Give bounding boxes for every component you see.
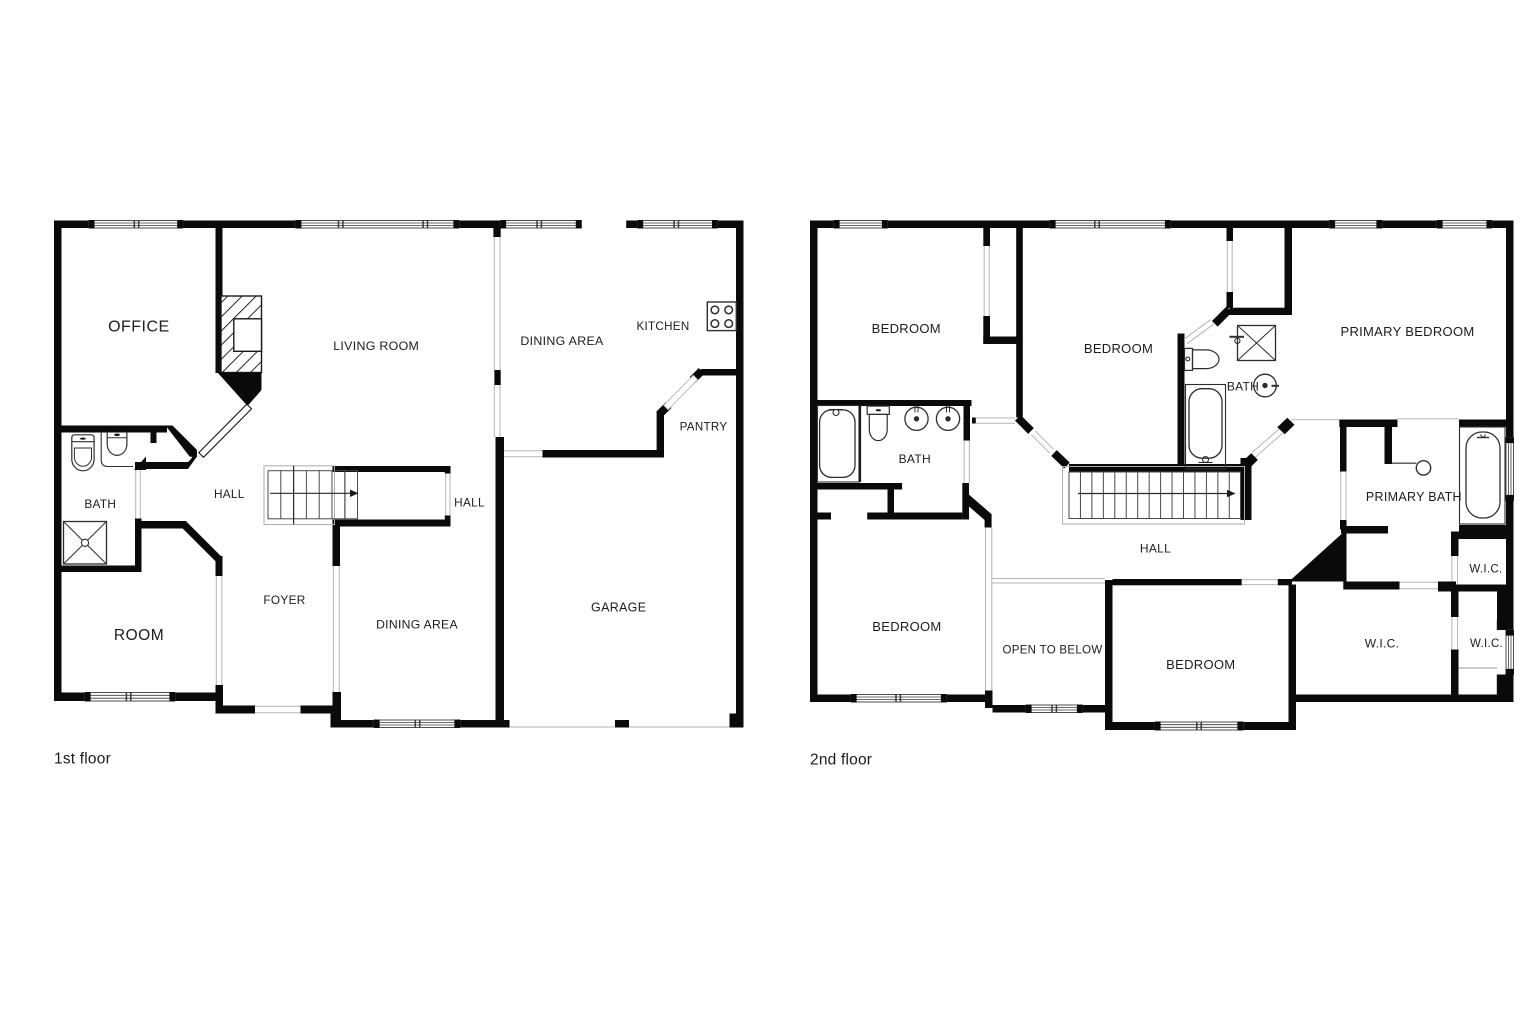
svg-text:1st floor: 1st floor — [54, 751, 111, 768]
svg-text:FOYER: FOYER — [263, 593, 305, 607]
svg-text:DINING AREA: DINING AREA — [520, 334, 604, 348]
svg-text:BEDROOM: BEDROOM — [872, 321, 941, 336]
svg-text:2nd floor: 2nd floor — [810, 752, 872, 769]
svg-text:W.I.C.: W.I.C. — [1469, 564, 1502, 576]
svg-text:BATH: BATH — [1227, 380, 1259, 394]
svg-text:OPEN TO BELOW: OPEN TO BELOW — [1003, 645, 1103, 657]
svg-text:PRIMARY BEDROOM: PRIMARY BEDROOM — [1340, 324, 1474, 339]
svg-text:HALL: HALL — [214, 487, 245, 501]
svg-text:OFFICE: OFFICE — [108, 319, 170, 336]
svg-text:BATH: BATH — [899, 452, 931, 466]
svg-text:W.I.C.: W.I.C. — [1470, 638, 1503, 650]
svg-text:BATH: BATH — [84, 497, 116, 511]
svg-text:W.I.C.: W.I.C. — [1365, 637, 1399, 651]
svg-text:LIVING ROOM: LIVING ROOM — [333, 339, 419, 353]
svg-text:PRIMARY BATH: PRIMARY BATH — [1366, 490, 1462, 504]
svg-text:PANTRY: PANTRY — [680, 421, 728, 434]
svg-text:KITCHEN: KITCHEN — [637, 320, 690, 333]
svg-text:BEDROOM: BEDROOM — [1166, 657, 1235, 672]
svg-text:HALL: HALL — [454, 496, 485, 510]
svg-text:BEDROOM: BEDROOM — [872, 619, 941, 634]
svg-text:HALL: HALL — [1140, 542, 1171, 556]
svg-text:GARAGE: GARAGE — [591, 601, 646, 615]
svg-text:DINING AREA: DINING AREA — [376, 618, 458, 632]
svg-text:BEDROOM: BEDROOM — [1084, 341, 1153, 356]
svg-text:ROOM: ROOM — [114, 627, 164, 644]
